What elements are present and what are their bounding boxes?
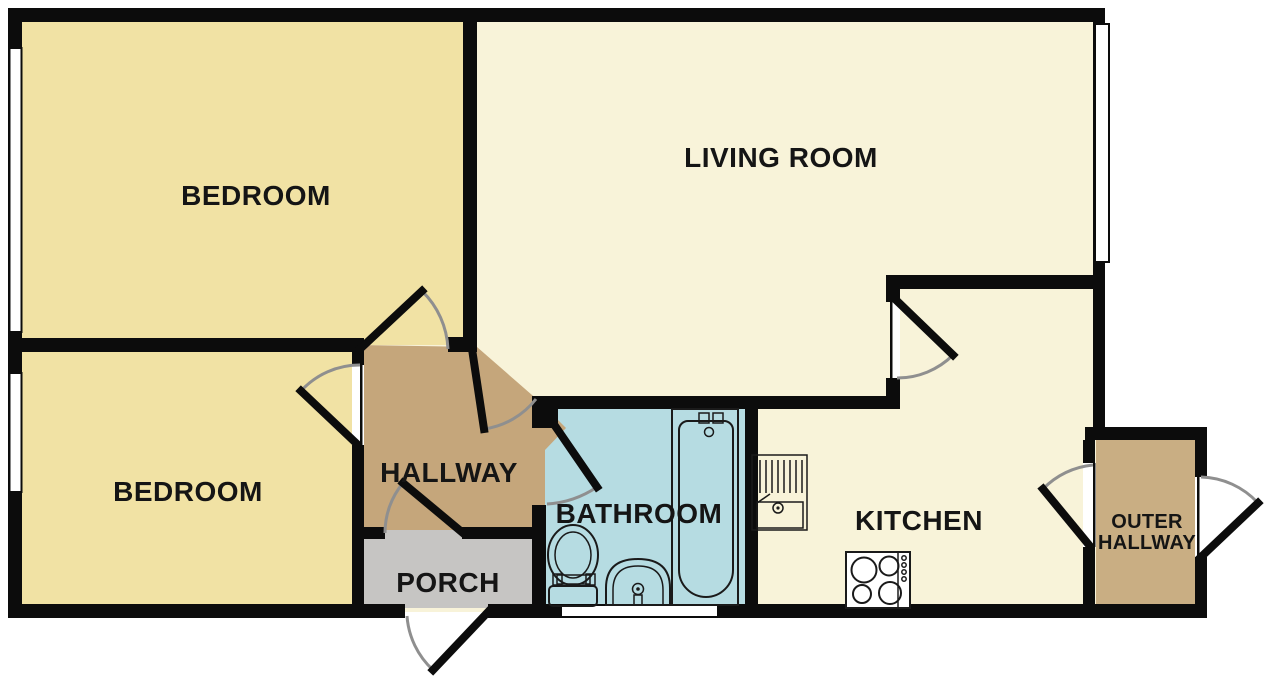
wall-segment bbox=[362, 527, 385, 539]
wall-segment bbox=[462, 527, 540, 539]
wall-segment bbox=[8, 338, 360, 352]
threshold-line bbox=[890, 302, 893, 378]
label-outer-hallway-line1: OUTER bbox=[1111, 511, 1183, 533]
wall-segment bbox=[532, 396, 900, 409]
stove-hob-icon bbox=[846, 552, 910, 608]
floor-plan-canvas: BEDROOM LIVING ROOM BEDROOM HALLWAY PORC… bbox=[0, 0, 1280, 692]
label-bathroom: BATHROOM bbox=[556, 498, 723, 529]
threshold-line bbox=[1197, 477, 1200, 557]
threshold-line bbox=[1093, 463, 1096, 547]
threshold-outer-exit bbox=[1195, 477, 1207, 557]
threshold-line bbox=[360, 365, 363, 445]
wall-segment bbox=[888, 275, 1105, 289]
label-kitchen: KITCHEN bbox=[855, 505, 983, 536]
wall-segment bbox=[1083, 604, 1207, 618]
wall-segment bbox=[1085, 427, 1207, 440]
wall-segment bbox=[532, 505, 546, 610]
wall-segment bbox=[463, 8, 477, 352]
label-living-room: LIVING ROOM bbox=[684, 142, 878, 173]
window-bedroom-top bbox=[10, 48, 22, 332]
label-porch: PORCH bbox=[396, 567, 500, 598]
wall-segment bbox=[1195, 427, 1207, 477]
label-hallway: HALLWAY bbox=[380, 457, 518, 488]
label-bedroom-bottom: BEDROOM bbox=[113, 476, 263, 507]
window-bedroom-bottom bbox=[10, 373, 22, 492]
wall-segment bbox=[886, 378, 900, 409]
floor-plan: BEDROOM LIVING ROOM BEDROOM HALLWAY PORC… bbox=[0, 0, 1280, 692]
wall-segment bbox=[8, 8, 1105, 22]
label-bedroom-top: BEDROOM bbox=[181, 180, 331, 211]
wall-segment bbox=[1083, 440, 1095, 463]
wall-segment bbox=[8, 604, 405, 618]
wall-segment bbox=[1083, 547, 1095, 604]
label-outer-hallway-line2: HALLWAY bbox=[1098, 532, 1196, 554]
window-living-room bbox=[1095, 24, 1109, 262]
